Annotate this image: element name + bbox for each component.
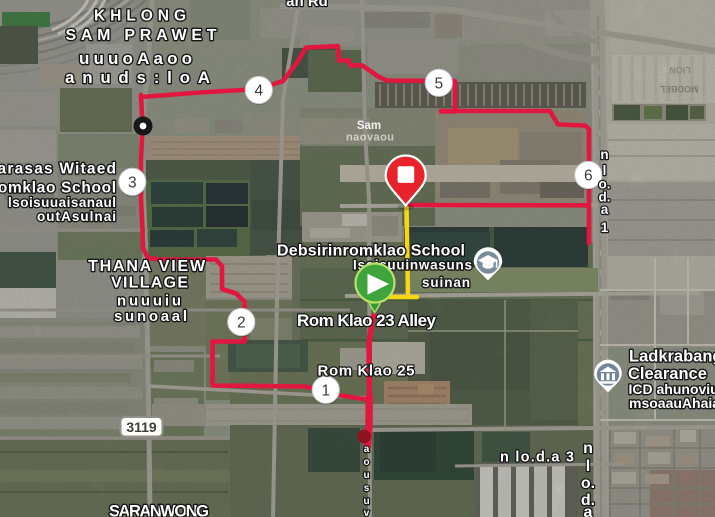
svg-text:an Rd: an Rd: [286, 0, 328, 10]
svg-text:Rom Klao 25: Rom Klao 25: [318, 363, 415, 380]
svg-text:o.: o.: [581, 475, 595, 492]
svg-text:sunoaal: sunoaal: [114, 308, 187, 325]
svg-text:o: o: [363, 457, 369, 468]
svg-text:6: 6: [584, 168, 593, 185]
svg-text:1: 1: [601, 220, 609, 235]
svg-text:lsoisuuaisanaul: lsoisuuaisanaul: [8, 195, 116, 210]
svg-text:SAM PRAWET: SAM PRAWET: [66, 27, 217, 44]
svg-text:u: u: [363, 470, 369, 481]
svg-text:3119: 3119: [126, 419, 157, 435]
svg-text:SARANWONG: SARANWONG: [109, 503, 209, 517]
svg-text:suinan: suinan: [422, 275, 470, 290]
svg-text:3: 3: [128, 174, 137, 191]
svg-text:MODBEL: MODBEL: [659, 84, 698, 94]
svg-text:anuds:loA: anuds:loA: [65, 68, 210, 87]
svg-text:4: 4: [254, 83, 263, 100]
svg-text:outAsulnai: outAsulnai: [37, 209, 116, 224]
svg-text:Sam: Sam: [357, 120, 381, 132]
svg-text:Sarasas Witaed: Sarasas Witaed: [0, 161, 116, 178]
svg-text:a: a: [601, 202, 609, 217]
svg-text:Ladkrabang: Ladkrabang: [629, 348, 715, 366]
svg-text:Romklao School: Romklao School: [0, 180, 116, 197]
svg-text:2: 2: [237, 315, 246, 332]
svg-text:a: a: [584, 504, 593, 517]
svg-text:LION: LION: [669, 65, 691, 75]
svg-text:5: 5: [434, 75, 443, 92]
svg-text:s: s: [364, 483, 370, 494]
svg-text:u: u: [363, 496, 369, 507]
svg-text:v: v: [364, 508, 370, 517]
svg-text:l: l: [586, 458, 590, 475]
svg-text:1: 1: [321, 382, 330, 399]
svg-text:n: n: [583, 440, 593, 457]
svg-text:n: n: [600, 147, 608, 162]
svg-text:a: a: [364, 444, 370, 455]
svg-text:Rom Klao 23 Alley: Rom Klao 23 Alley: [297, 311, 437, 330]
svg-text:msoaauAhaia: msoaauAhaia: [629, 395, 715, 411]
svg-text:naovaou: naovaou: [346, 132, 394, 144]
svg-text:n lo.d.a 3: n lo.d.a 3: [500, 450, 574, 466]
